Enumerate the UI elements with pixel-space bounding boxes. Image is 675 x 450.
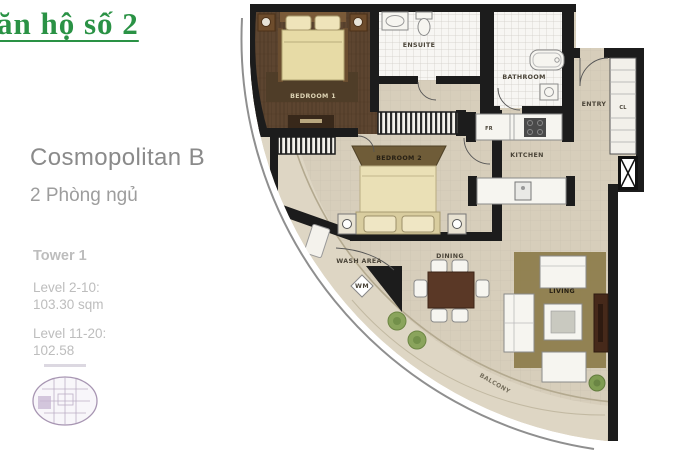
- vent-shaft-icon: [618, 156, 638, 190]
- toilet-icon: [416, 12, 432, 19]
- fridge-label: FR: [485, 126, 493, 132]
- living-furniture: [504, 252, 608, 382]
- kitchen-label: KITCHEN: [510, 152, 543, 159]
- chair: [414, 280, 427, 297]
- apartment-floorplan-page: ăn hộ số 2 Cosmopolitan B 2 Phòng ngủ To…: [0, 0, 675, 450]
- chair: [452, 309, 468, 322]
- chair: [431, 260, 447, 273]
- bedroom2-label: BEDROOM 2: [376, 155, 422, 162]
- bed: [282, 30, 344, 80]
- chair: [476, 280, 489, 297]
- living-label: LIVING: [549, 288, 575, 295]
- lamp-icon: [453, 220, 462, 229]
- lamp-icon: [343, 220, 352, 229]
- pillow-icon: [402, 216, 434, 232]
- bedroom1-label: BEDROOM 1: [290, 93, 336, 100]
- sink-icon: [540, 84, 558, 100]
- lamp-icon: [262, 18, 271, 27]
- wash-area-label: WASH AREA: [336, 258, 382, 265]
- chair: [452, 260, 468, 273]
- floor-plan: BEDROOM 1 ENSUITE BATHROOM ENTRY CL FR K…: [0, 0, 675, 450]
- lamp-icon: [354, 18, 363, 27]
- washer-label: WM: [355, 283, 369, 290]
- ensuite-label: ENSUITE: [403, 42, 436, 49]
- bathroom-label: BATHROOM: [502, 74, 545, 81]
- entry-label: ENTRY: [582, 101, 607, 108]
- sink-icon: [515, 182, 531, 200]
- sofa: [540, 256, 586, 288]
- pillow-icon: [364, 216, 396, 232]
- wardrobe: [378, 112, 458, 134]
- dining-table: [428, 272, 474, 308]
- bed: [360, 166, 436, 216]
- pillow-icon: [315, 16, 340, 30]
- chair: [431, 309, 447, 322]
- closet-label: CL: [619, 105, 627, 111]
- wardrobe: [278, 137, 335, 154]
- pillow-icon: [286, 16, 311, 30]
- dining-label: DINING: [436, 253, 464, 260]
- stove-icon: [524, 118, 546, 137]
- sofa: [542, 352, 586, 382]
